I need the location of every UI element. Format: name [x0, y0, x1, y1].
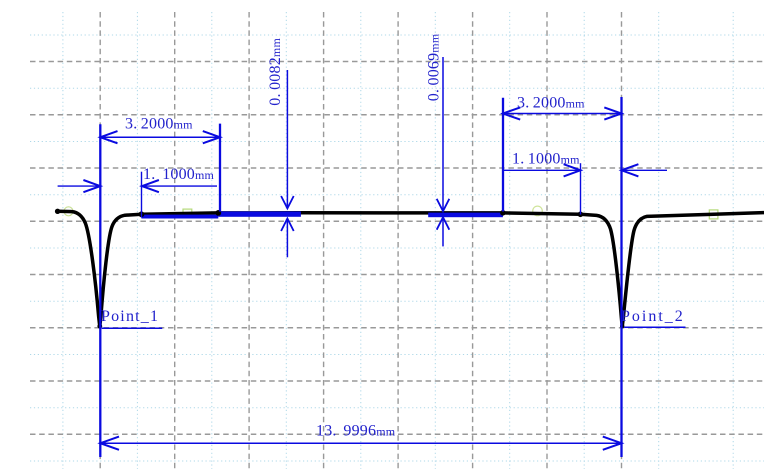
svg-text:Point_2: Point_2	[621, 308, 685, 325]
svg-text:1. 1000mm: 1. 1000mm	[512, 151, 580, 168]
svg-text:0. 0069mm: 0. 0069mm	[426, 33, 443, 101]
svg-text:0. 0082mm: 0. 0082mm	[267, 38, 284, 106]
svg-text:3. 2000mm: 3. 2000mm	[125, 116, 193, 133]
svg-text:13. 9996mm: 13. 9996mm	[316, 423, 396, 440]
svg-text:1. 1000mm: 1. 1000mm	[143, 166, 215, 183]
svg-text:Point_1: Point_1	[101, 308, 159, 325]
svg-text:3. 2000mm: 3. 2000mm	[517, 95, 585, 112]
